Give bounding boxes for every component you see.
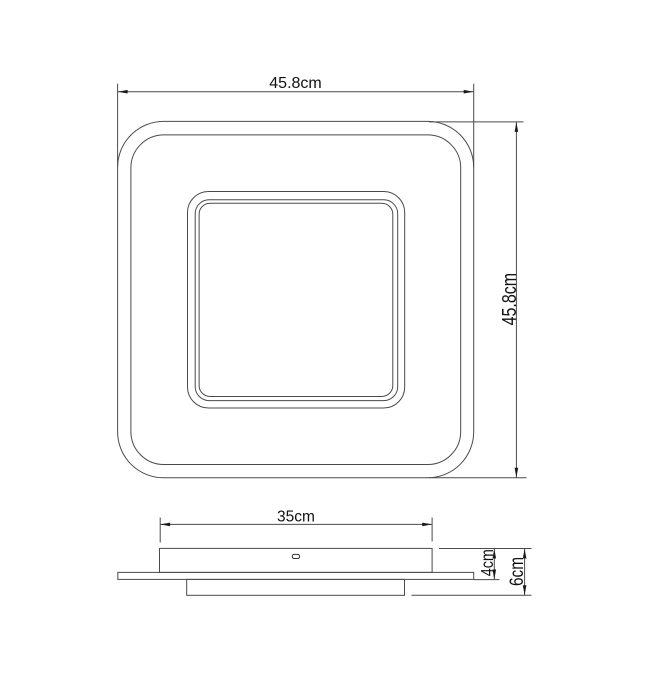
svg-text:45.8cm: 45.8cm bbox=[269, 75, 321, 92]
svg-text:45.8cm: 45.8cm bbox=[498, 273, 520, 325]
svg-text:4cm: 4cm bbox=[478, 549, 498, 576]
svg-text:6cm: 6cm bbox=[505, 557, 527, 586]
svg-text:35cm: 35cm bbox=[277, 509, 315, 526]
